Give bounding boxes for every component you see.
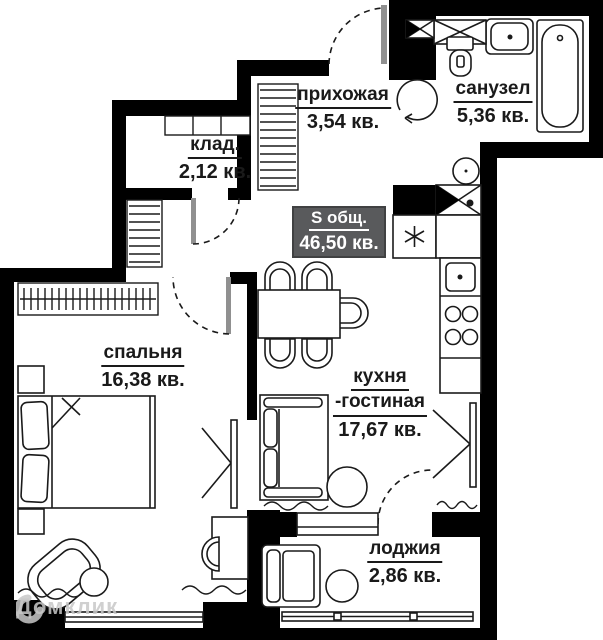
room-name: кухня xyxy=(351,366,408,391)
wardrobe-icon xyxy=(258,84,298,190)
boiler-icon xyxy=(453,158,479,184)
total-area-label: S общ. xyxy=(309,209,369,231)
room-name: спальня xyxy=(102,342,185,367)
room-area: 17,67 кв. xyxy=(333,419,427,443)
hanging-rail-icon xyxy=(18,283,158,315)
kitchen-loggia-window-icon xyxy=(297,513,378,535)
loggia-furniture xyxy=(262,545,358,607)
armchair-icon xyxy=(262,545,320,607)
vent-shaft-icon xyxy=(406,20,434,38)
bedroom-door-swing-icon xyxy=(173,277,231,334)
kitchen-sliding-panel-icon xyxy=(433,403,476,487)
room-name: -гостиная xyxy=(333,391,427,416)
nightstand-icon xyxy=(18,366,44,393)
total-area-badge: S общ. 46,50 кв. xyxy=(292,206,386,258)
sofa-icon xyxy=(260,395,328,500)
side-table-icon xyxy=(80,568,108,596)
vent-duct-icon xyxy=(436,185,481,215)
room-label-bedroom: спальня 16,38 кв. xyxy=(101,342,184,393)
watermark: Домклик xyxy=(16,594,118,620)
vent-asterisk-icon xyxy=(393,215,481,258)
side-table-icon xyxy=(326,570,358,602)
room-area: 2,12 кв. xyxy=(179,161,251,185)
floor-plan: прихожая 3,54 кв. санузел 5,36 кв. клад.… xyxy=(0,0,603,640)
room-name: клад. xyxy=(188,134,242,159)
room-label-bathroom: санузел 5,36 кв. xyxy=(454,78,533,129)
bed-icon xyxy=(18,396,155,508)
room-area: 16,38 кв. xyxy=(101,369,184,393)
wardrobe-icon xyxy=(127,200,162,267)
domclick-logo-icon xyxy=(16,594,44,624)
loggia-glazing-icon xyxy=(282,612,473,621)
room-name: санузел xyxy=(454,78,533,103)
room-name: прихожая xyxy=(295,84,391,109)
desk-chair-icon xyxy=(202,537,219,571)
total-area-value: 46,50 кв. xyxy=(299,233,378,255)
shelf-icon xyxy=(165,116,250,135)
room-label-hallway: прихожая 3,54 кв. xyxy=(295,84,391,135)
room-name: лоджия xyxy=(367,538,442,563)
bathroom-door-swing-icon xyxy=(397,80,437,123)
room-label-loggia: лоджия 2,86 кв. xyxy=(367,538,442,589)
bedroom-sliding-panel-icon xyxy=(202,420,237,508)
bathtub-icon xyxy=(537,20,583,132)
dining-table-icon xyxy=(258,290,340,338)
coffee-table-icon xyxy=(327,467,367,507)
room-label-storage: клад. 2,12 кв. xyxy=(179,134,251,185)
room-area: 2,86 кв. xyxy=(367,565,442,589)
room-area: 5,36 кв. xyxy=(454,105,533,129)
entry-door-swing-icon xyxy=(329,5,387,64)
bedroom-furniture xyxy=(18,366,248,617)
toilet-icon xyxy=(447,37,473,76)
sink-icon xyxy=(486,19,533,54)
storage-door-swing-icon xyxy=(191,198,239,244)
room-area: 3,54 кв. xyxy=(295,111,391,135)
nightstand-icon xyxy=(18,509,44,534)
loggia-door-swing-icon xyxy=(378,470,432,524)
kitchen-sink-icon xyxy=(446,263,475,291)
room-label-kitchen-living: кухня -гостиная 17,67 кв. xyxy=(333,366,427,442)
